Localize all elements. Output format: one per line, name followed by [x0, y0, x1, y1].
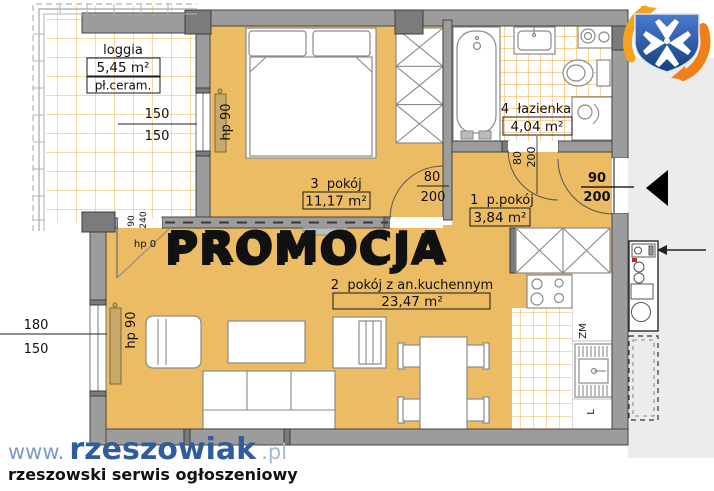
- kitchen-upper-cabinets: [510, 228, 610, 273]
- room2-area: 23,47 m²: [381, 294, 443, 310]
- balcony-door-height: 240: [139, 211, 149, 228]
- watermark-www: www.: [8, 440, 64, 464]
- bath-door-height: 200: [525, 147, 538, 168]
- bathtub: [453, 27, 500, 141]
- kitchen-floor: [512, 308, 572, 429]
- living-window-dim-top: 180: [24, 318, 49, 333]
- hp-label-bedroom: hp 90: [219, 103, 234, 140]
- loggia-dim-top: 150: [145, 107, 170, 122]
- living-radiator: [110, 303, 121, 384]
- watermark-tagline: rzeszowski serwis ogłoszeniowy: [8, 465, 298, 484]
- coffee-table: [228, 321, 305, 363]
- promo-text: PROMOCJA PROMOCJA: [164, 222, 449, 276]
- bath-name: 4 łazienka: [501, 102, 571, 117]
- hp-label-balcony: hp 0: [134, 239, 156, 250]
- bath-area: 4,04 m²: [511, 119, 564, 135]
- room3-name: 3 pokój: [310, 177, 361, 192]
- hall-name: 1 p.pokój: [470, 193, 534, 208]
- sink-label: ZM: [578, 323, 589, 338]
- living-window-dim-bottom: 150: [24, 342, 49, 357]
- corner-sink-unit: [578, 24, 612, 48]
- bed: [246, 28, 376, 158]
- toilet: [563, 60, 610, 86]
- bedroom-wardrobe: [396, 28, 443, 143]
- loggia-dim-bottom: 150: [145, 129, 170, 144]
- watermark: www. rzeszowiak .pl rzeszowski serwis og…: [8, 432, 298, 484]
- living-window: [90, 300, 106, 396]
- kitchen-sink: [575, 344, 612, 397]
- floorplan-svg: 150 150 180 150 80 200 80 200 90 200 90 …: [0, 0, 714, 491]
- bedroom-window: [196, 88, 210, 156]
- room2-name: 2 pokój z an.kuchennym: [331, 278, 493, 293]
- washing-machine: [572, 97, 612, 140]
- loggia-name: loggia: [103, 43, 143, 58]
- floorplan-image: 150 150 180 150 80 200 80 200 90 200 90 …: [0, 0, 714, 491]
- tv-stand: [333, 317, 386, 368]
- loggia-floor-type: pł.ceram.: [95, 79, 152, 93]
- loggia-area: 5,45 m²: [97, 60, 150, 76]
- bedroom-door-height: 200: [421, 190, 446, 205]
- balcony-door-width: 90: [127, 215, 137, 227]
- armchair: [146, 316, 201, 368]
- room3-area: 11,17 m²: [305, 194, 367, 210]
- watermark-tld: .pl: [261, 440, 287, 464]
- watermark-domain: rzeszowiak: [69, 432, 257, 467]
- fridge-label: L: [586, 409, 597, 415]
- stove: [527, 275, 572, 308]
- sofa: [203, 371, 335, 429]
- washbasin: [514, 27, 555, 54]
- hp-label-living: hp 90: [124, 311, 139, 348]
- entry-door-width: 90: [588, 171, 606, 186]
- promo-text-main: PROMOCJA: [167, 222, 449, 273]
- bath-door-width: 80: [511, 151, 524, 165]
- entry-door-height: 200: [583, 190, 610, 205]
- hall-area: 3,84 m²: [474, 210, 527, 226]
- bedroom-door-width: 80: [424, 170, 441, 185]
- loggia-floor: [46, 6, 196, 222]
